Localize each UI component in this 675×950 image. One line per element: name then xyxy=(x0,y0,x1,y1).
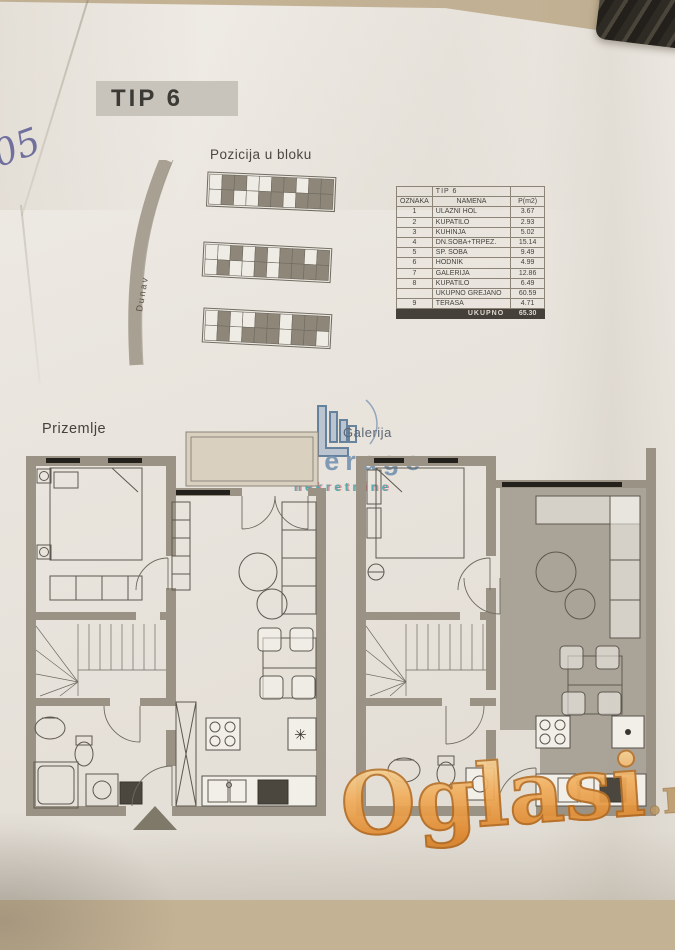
entrance-door xyxy=(498,768,536,806)
dining-set xyxy=(258,628,316,699)
table-row: 1ULAZNI HOL3.67 xyxy=(397,207,545,217)
col-header-p: P(m2) xyxy=(511,197,545,207)
living-furniture xyxy=(239,502,316,619)
table-row: 8KUPATILO6.49 xyxy=(397,278,545,288)
table-row: 5SP. SOBA9.49 xyxy=(397,248,545,258)
bathroom-fixtures xyxy=(388,706,494,800)
table-row: 2KUPATILO2.93 xyxy=(397,217,545,227)
bedroom-door xyxy=(136,558,168,590)
entrance-marker xyxy=(131,804,179,832)
area-table: TIP 6 OZNAKA NAMENA P(m2) 1ULAZNI HOL3.6… xyxy=(396,186,545,319)
table-corner-cell xyxy=(511,187,545,197)
stairs xyxy=(366,624,486,696)
floor-plan-ground: ✳ xyxy=(20,430,332,830)
building-strip xyxy=(202,242,332,283)
photographed-floorplan-page: { "page": { "handwritten_note": "05" }, … xyxy=(0,0,675,900)
freezer-symbol: ✳ xyxy=(294,726,307,744)
bedroom-furniture xyxy=(367,468,464,580)
stairs xyxy=(36,624,166,696)
terrace-double-door xyxy=(242,496,308,529)
building-strip xyxy=(202,308,332,349)
area-table-body: TIP 6 OZNAKA NAMENA P(m2) xyxy=(397,187,545,207)
table-row: 6HODNIK4.99 xyxy=(397,258,545,268)
area-table-rows: 1ULAZNI HOL3.672KUPATILO2.933KUHINJA5.02… xyxy=(397,207,545,309)
col-header-oznaka: OZNAKA xyxy=(397,197,433,207)
table-row: 3KUHINJA5.02 xyxy=(397,227,545,237)
position-in-block-diagram: Dunav xyxy=(112,160,362,370)
kitchen: ✳ xyxy=(176,702,316,806)
bedroom-door xyxy=(458,558,490,590)
floor-plan-gallery xyxy=(350,430,665,830)
table-total-value: 65.30 xyxy=(511,309,545,319)
table-title: TIP 6 xyxy=(432,187,510,197)
table-row: 9TERASA4.71 xyxy=(397,299,545,309)
table-row: 4DN.SOBA+TRPEZ.15.14 xyxy=(397,237,545,247)
building-strips xyxy=(202,172,336,349)
table-row: 7GALERIJA12.86 xyxy=(397,268,545,278)
apartment-type-header: TIP 6 xyxy=(96,81,238,116)
table-corner-cell xyxy=(397,187,433,197)
col-header-namena: NAMENA xyxy=(432,197,510,207)
table-total-label: UKUPNO xyxy=(397,309,511,319)
bedroom-furniture xyxy=(37,468,142,600)
table-row: UKUPNO GREJANO60.59 xyxy=(397,288,545,298)
bathroom-fixtures xyxy=(34,706,142,808)
terrace xyxy=(186,432,318,486)
building-strip xyxy=(207,172,336,212)
